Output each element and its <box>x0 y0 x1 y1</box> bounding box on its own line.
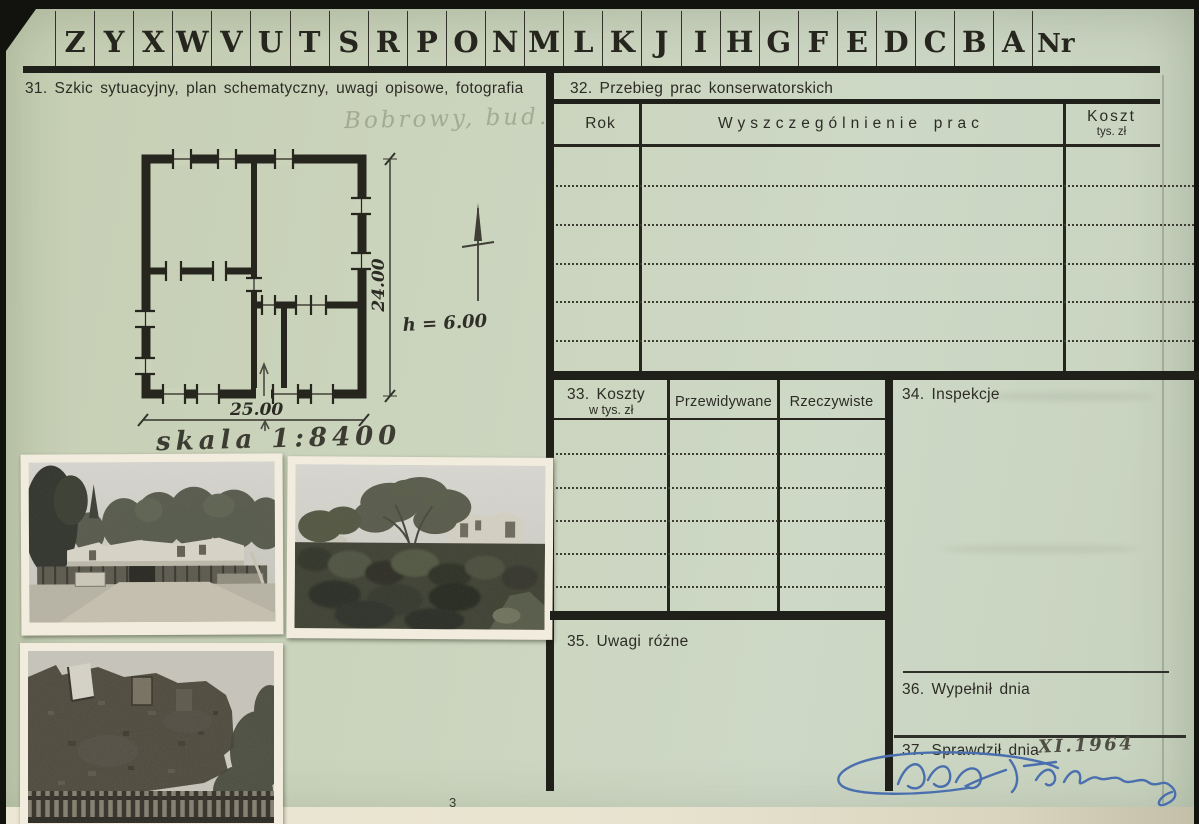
scanned-card: ZYXWVUTSRPONMLKJIHGFEDCBANr 31. Szkic sy… <box>0 0 1199 824</box>
index-tab-nr: Nr <box>1032 11 1078 67</box>
table-33-row-line <box>556 453 886 455</box>
header-rule <box>23 66 1160 73</box>
index-tab-b: B <box>954 11 993 67</box>
table-33-row-line <box>556 586 886 588</box>
divider-vertical-right <box>885 371 893 791</box>
table-32-bottom-border <box>550 371 1199 380</box>
north-arrow <box>462 203 494 301</box>
section-33-subtitle: w tys. zł <box>589 403 633 417</box>
plan-scale-note: skala 1:8400 <box>156 421 402 457</box>
index-tab-x: X <box>133 11 172 67</box>
index-tab-o: O <box>446 11 485 67</box>
index-tab-i: I <box>681 11 720 67</box>
table-33-bottom-border <box>550 611 893 620</box>
photo-ruins-panorama-image <box>29 461 276 622</box>
table-33-divider-2 <box>777 380 780 612</box>
table-33-header-underline <box>553 418 886 420</box>
column-header-koszt: Koszt <box>1065 108 1158 126</box>
table-33-row-line <box>556 553 886 555</box>
signatures <box>828 740 1198 824</box>
table-33-divider-1 <box>667 380 670 612</box>
index-tab-y: Y <box>94 11 133 67</box>
index-tab-m: M <box>524 11 563 67</box>
floor-plan-drawing: 24.00 25.00 h = 6.00 <box>113 133 533 431</box>
signature-1 <box>838 752 1058 793</box>
index-tab-d: D <box>876 11 915 67</box>
index-tab-h: H <box>720 11 759 67</box>
section-32-title: 32. Przebieg prac konserwatorskich <box>570 80 833 98</box>
plan-walls <box>146 159 362 394</box>
photo-overgrown-ruins <box>286 456 553 640</box>
table-32-row-line <box>556 224 1194 226</box>
table-33-row-line <box>556 487 886 489</box>
section-33-title: 33. Koszty <box>567 386 645 404</box>
section-36-rule <box>903 671 1169 673</box>
pencil-smudge <box>940 545 1140 553</box>
index-tab-w: W <box>172 11 211 67</box>
index-tab-c: C <box>915 11 954 67</box>
photo-ruins-panorama <box>21 453 284 635</box>
table-32-row-line <box>556 263 1194 265</box>
pencil-note: Bobrowy, bud. <box>344 104 550 134</box>
section-36-title: 36. Wypełnił dnia <box>902 681 1030 699</box>
index-tab-j: J <box>641 11 680 67</box>
table-32-row-line <box>556 185 1194 187</box>
index-tab-row: ZYXWVUTSRPONMLKJIHGFEDCBANr <box>55 11 1078 67</box>
column-header-rzeczywiste: Rzeczywiste <box>780 394 883 410</box>
index-tab-a: A <box>993 11 1032 67</box>
table-32-row-line <box>556 340 1194 342</box>
section-31-title: 31. Szkic sytuacyjny, plan schematyczny,… <box>25 80 545 98</box>
column-header-koszt-sub: tys. zł <box>1065 126 1158 138</box>
index-tab-l: L <box>563 11 602 67</box>
plan-dim-height: 24.00 <box>369 258 389 312</box>
index-tab-p: P <box>407 11 446 67</box>
photo-overgrown-ruins-image <box>294 464 545 630</box>
index-tab-t: T <box>290 11 329 67</box>
divider-vertical-main <box>546 72 554 791</box>
index-tab-g: G <box>759 11 798 67</box>
plan-wall-height-note: h = 6.00 <box>402 311 488 336</box>
index-tab-u: U <box>250 11 289 67</box>
index-tab-r: R <box>368 11 407 67</box>
index-tab-v: V <box>211 11 250 67</box>
pencil-smudge <box>985 392 1155 401</box>
plan-dim-width: 25.00 <box>229 400 283 420</box>
index-tab-f: F <box>798 11 837 67</box>
table-32-header-underline <box>553 144 1160 147</box>
index-tab-e: E <box>837 11 876 67</box>
signature-2 <box>1036 770 1175 805</box>
index-tab-n: N <box>485 11 524 67</box>
table-32-row-line <box>556 301 1194 303</box>
index-tab-k: K <box>602 11 641 67</box>
column-header-prace: Wyszczególnienie prac <box>641 115 1061 133</box>
index-tab-z: Z <box>55 11 94 67</box>
column-header-rok: Rok <box>562 115 639 133</box>
index-tab-s: S <box>329 11 368 67</box>
column-header-przewidywane: Przewidywane <box>670 394 777 410</box>
photo-ruin-wall <box>20 643 283 824</box>
table-32-top-border <box>553 99 1160 104</box>
table-33-row-line <box>556 520 886 522</box>
photo-ruin-wall-image <box>28 651 274 823</box>
margin-mark: 3 <box>449 795 456 810</box>
section-35-title: 35. Uwagi różne <box>567 633 689 651</box>
